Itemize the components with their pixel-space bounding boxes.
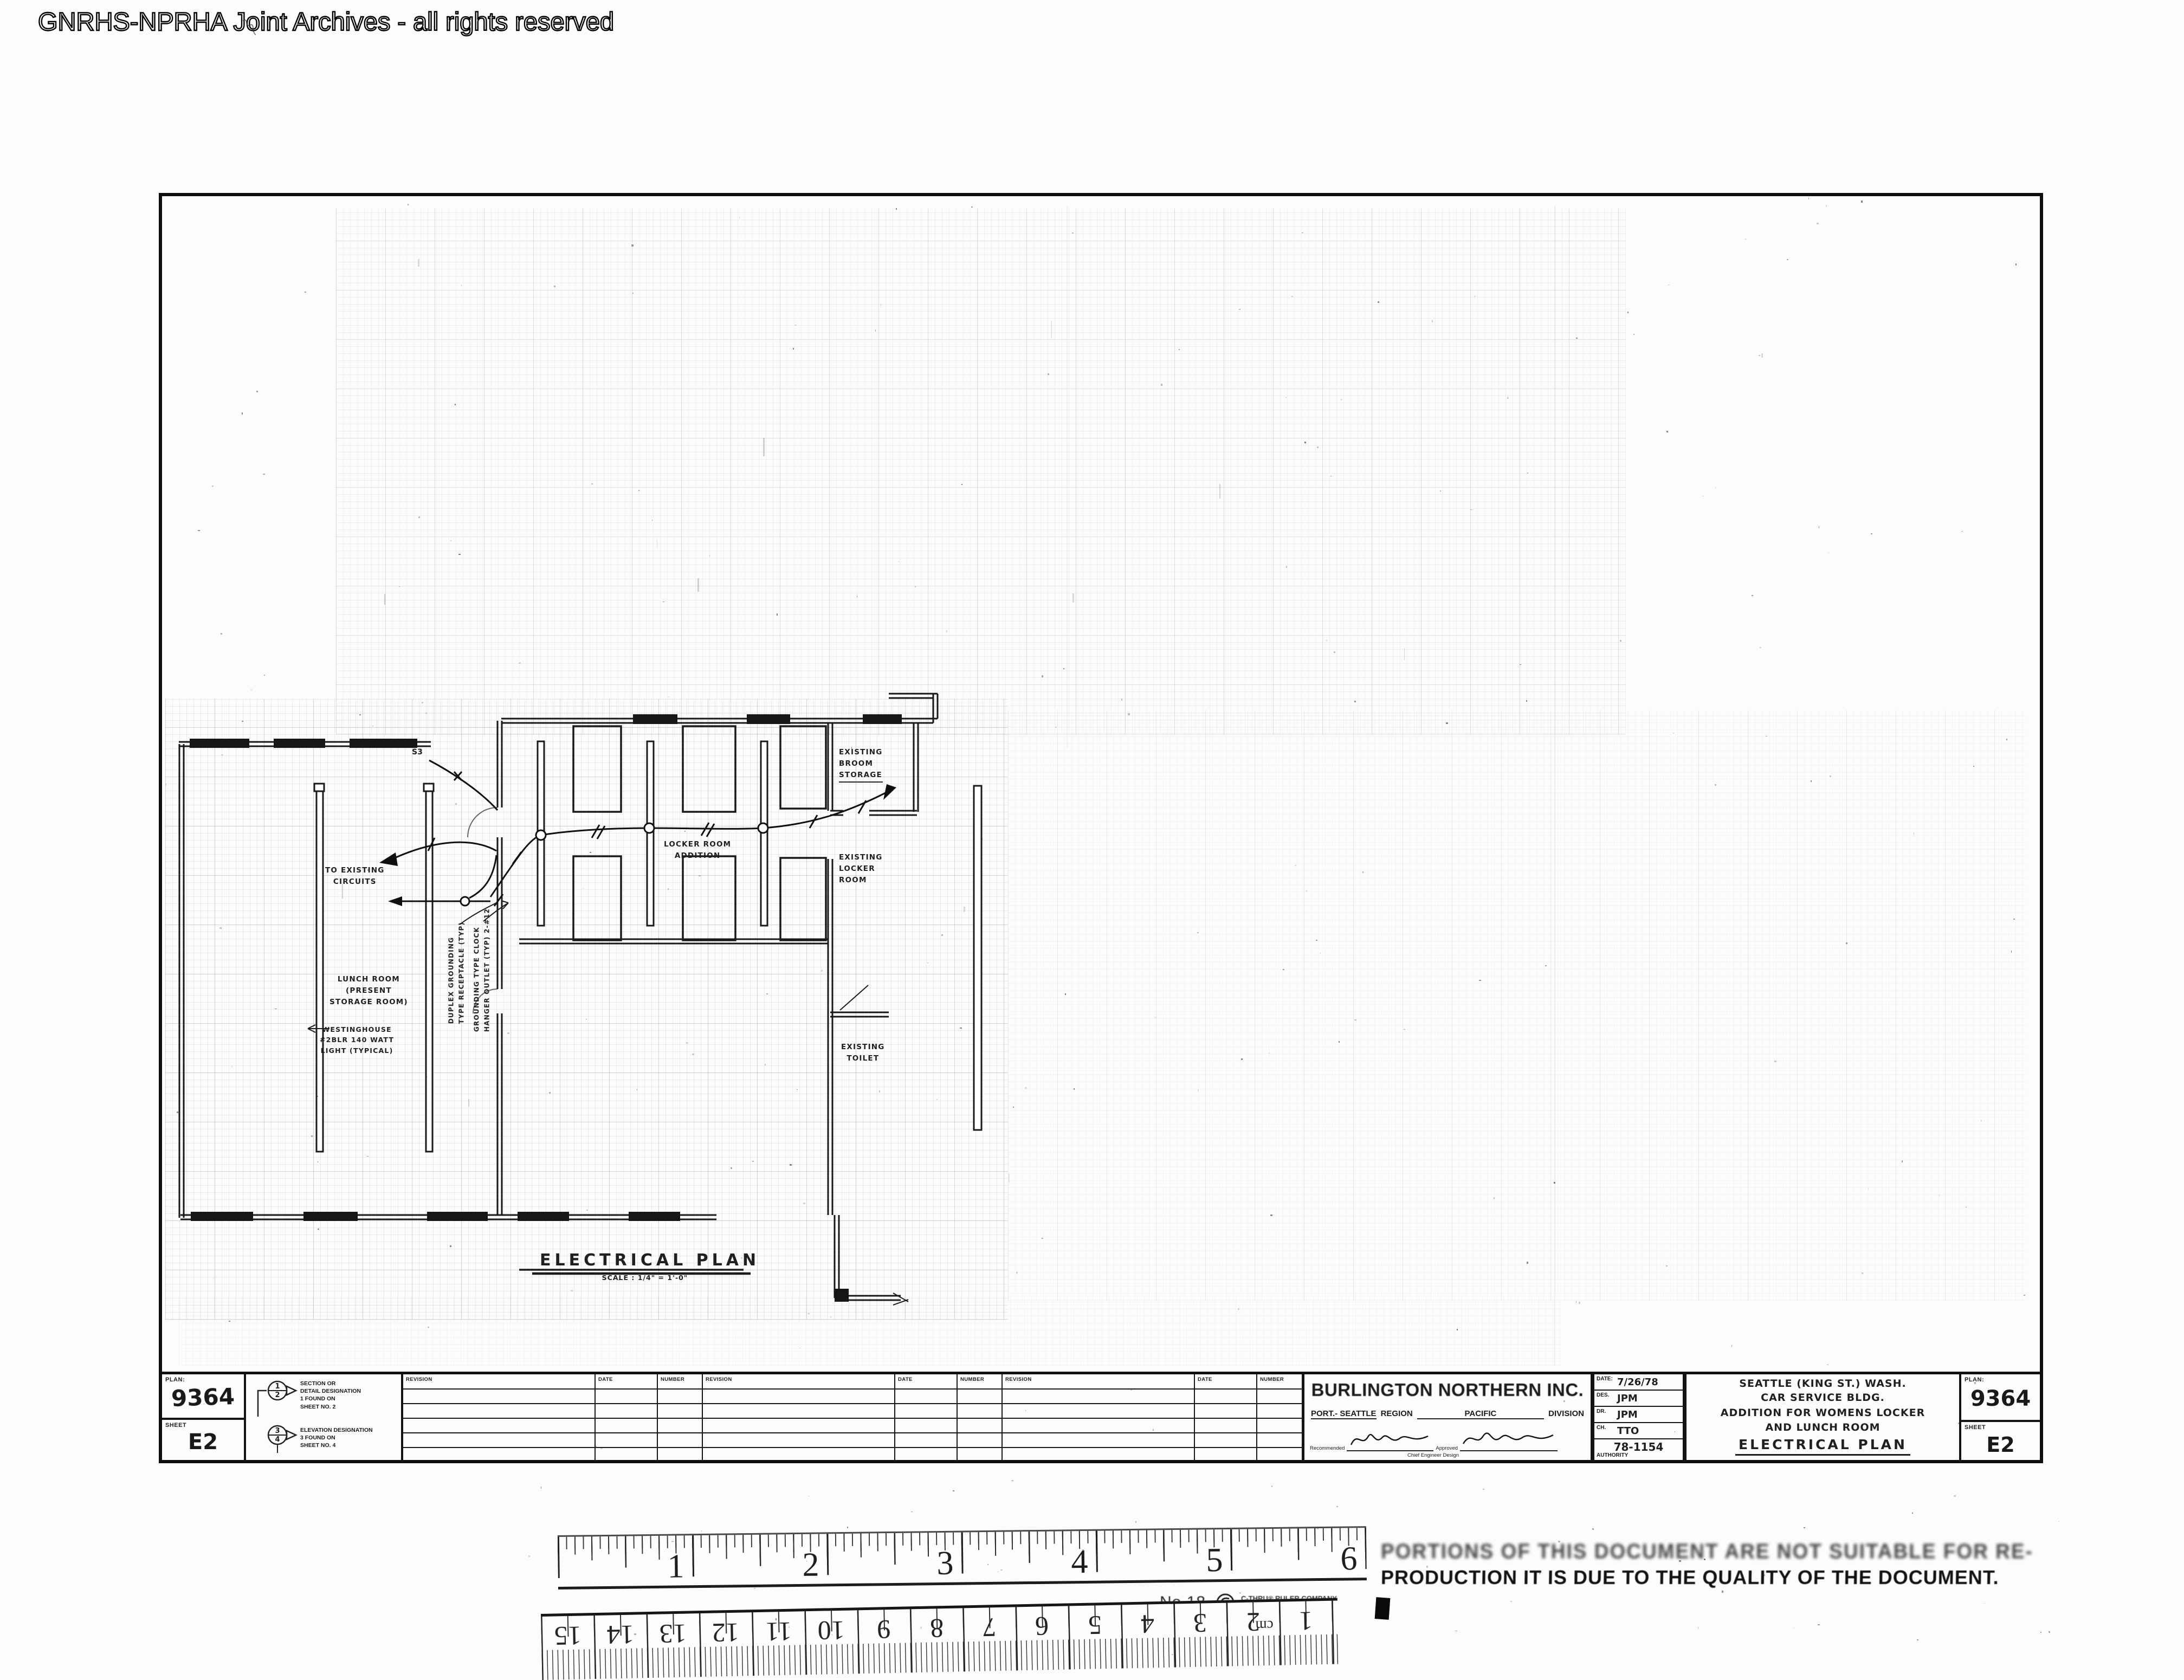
company-name: BURLINGTON NORTHERN INC. bbox=[1304, 1380, 1591, 1400]
revision-header: REVISION bbox=[406, 1377, 432, 1382]
project-line2: CAR SERVICE BLDG. bbox=[1687, 1392, 1959, 1404]
approval-row-ch: CH. TTO bbox=[1594, 1423, 1683, 1439]
number-header: NUMBER bbox=[661, 1377, 684, 1382]
legend-elevation-bottom-num: 4 bbox=[275, 1436, 280, 1444]
number-header: NUMBER bbox=[960, 1377, 984, 1382]
inch-ruler: 1 2 3 4 5 6 bbox=[558, 1526, 1367, 1589]
recommended-label: Recommended bbox=[1310, 1445, 1345, 1451]
region-label: REGION bbox=[1381, 1409, 1413, 1418]
ch-label: CH. bbox=[1597, 1425, 1606, 1431]
project-title: ELECTRICAL PLAN bbox=[1687, 1437, 1959, 1452]
revision-header: REVISION bbox=[1005, 1377, 1032, 1382]
dr-value: JPM bbox=[1617, 1409, 1638, 1420]
cm-number: 1 bbox=[1287, 1605, 1324, 1637]
chief-engineer-caption: Chief Engineer Design bbox=[1407, 1452, 1459, 1458]
project-line3: ADDITION FOR WOMENS LOCKER bbox=[1687, 1407, 1959, 1419]
plan-sheet-box-right: PLAN: 9364 SHEET E2 bbox=[1961, 1374, 2040, 1462]
legend-elevation-top-num: 3 bbox=[275, 1427, 280, 1435]
inch-number: 5 bbox=[1193, 1541, 1223, 1580]
project-box: SEATTLE (KING ST.) WASH. CAR SERVICE BLD… bbox=[1685, 1374, 1961, 1462]
company-box: BURLINGTON NORTHERN INC. PORT.- SEATTLE … bbox=[1303, 1374, 1593, 1462]
cm-number: 15 bbox=[549, 1620, 586, 1652]
inch-number: 3 bbox=[923, 1545, 954, 1584]
sheet-label: SHEET bbox=[1965, 1424, 1986, 1431]
cm-number: 7 bbox=[971, 1612, 1008, 1644]
sheet-label: SHEET bbox=[165, 1422, 186, 1429]
region-line: PORT.- SEATTLE REGION PACIFIC DIVISION bbox=[1311, 1409, 1584, 1419]
date-value: 7/26/78 bbox=[1617, 1377, 1658, 1388]
cm-number: 8 bbox=[918, 1613, 955, 1645]
date-header: DATE bbox=[598, 1377, 613, 1382]
recommended-signature bbox=[1347, 1430, 1433, 1451]
plan-label: PLAN: bbox=[1965, 1377, 1984, 1383]
legend-box: 1 2 3 4 SECTION OR DETAIL DESIGNATION 1 … bbox=[246, 1374, 403, 1462]
des-value: JPM bbox=[1617, 1393, 1638, 1404]
division-value: PACIFIC bbox=[1417, 1409, 1544, 1419]
sheet-number: E2 bbox=[1961, 1433, 2040, 1457]
cm-number: 3 bbox=[1181, 1607, 1219, 1639]
legend-section-text: SECTION OR DETAIL DESIGNATION 1 FOUND ON… bbox=[300, 1380, 361, 1411]
title-block: PLAN: 9364 SHEET E2 1 2 3 4 SECTION OR D… bbox=[162, 1372, 2040, 1462]
ch-value: TTO bbox=[1617, 1425, 1639, 1437]
date-header: DATE bbox=[898, 1377, 913, 1382]
inch-number: 6 bbox=[1327, 1540, 1358, 1579]
sheet-number: E2 bbox=[162, 1430, 244, 1455]
approved-label: Approved bbox=[1436, 1445, 1458, 1451]
des-label: DES. bbox=[1597, 1392, 1609, 1398]
cm-number: 6 bbox=[1023, 1611, 1061, 1643]
approved-signature bbox=[1460, 1430, 1558, 1451]
cm-number: 13 bbox=[654, 1618, 692, 1650]
cm-number: 5 bbox=[1076, 1610, 1114, 1642]
authority-value: 78-1154 bbox=[1594, 1440, 1683, 1453]
signature-row: Recommended Approved bbox=[1310, 1430, 1585, 1451]
date-label: DATE: bbox=[1597, 1376, 1613, 1382]
revision-table-group: REVISION DATE NUMBER bbox=[703, 1374, 1003, 1462]
number-header: NUMBER bbox=[1260, 1377, 1284, 1382]
authority-label: AUTHORITY bbox=[1597, 1452, 1628, 1458]
plan-number: 9364 bbox=[161, 1382, 244, 1412]
cm-number: 9 bbox=[865, 1614, 902, 1646]
date-header: DATE bbox=[1198, 1377, 1212, 1382]
revision-table-group: REVISION DATE NUMBER bbox=[403, 1374, 703, 1462]
plan-label: PLAN: bbox=[165, 1377, 185, 1383]
cm-number: 14 bbox=[602, 1619, 639, 1651]
cm-number: 11 bbox=[760, 1616, 797, 1648]
approval-row-dr: DR. JPM bbox=[1594, 1407, 1683, 1423]
revision-table-group: REVISION DATE NUMBER bbox=[1003, 1374, 1303, 1462]
plan-sheet-box-left: PLAN: 9364 SHEET E2 bbox=[162, 1374, 246, 1462]
port-value: PORT.- SEATTLE bbox=[1311, 1409, 1377, 1419]
cm-number: 12 bbox=[707, 1617, 744, 1649]
approval-row-des: DES. JPM bbox=[1594, 1391, 1683, 1407]
project-line4: AND LUNCH ROOM bbox=[1687, 1421, 1959, 1433]
legend-section-bottom-num: 2 bbox=[275, 1391, 280, 1399]
approval-row-authority: 78-1154 AUTHORITY bbox=[1594, 1439, 1683, 1459]
cm-number: 10 bbox=[812, 1615, 850, 1647]
inch-number: 1 bbox=[654, 1547, 684, 1586]
approvals-box: DATE: 7/26/78 DES. JPM DR. JPM CH. TTO 7… bbox=[1593, 1374, 1685, 1462]
revision-header: REVISION bbox=[706, 1377, 732, 1382]
project-line1: SEATTLE (KING ST.) WASH. bbox=[1687, 1378, 1959, 1390]
legend-section-top-num: 1 bbox=[275, 1382, 280, 1391]
approval-row-date: DATE: 7/26/78 bbox=[1594, 1374, 1683, 1391]
plan-number: 9364 bbox=[1961, 1386, 2040, 1411]
cm-number: 4 bbox=[1129, 1608, 1166, 1640]
scanned-drawing-page: { "watermark": "GNRHS-NPRHA Joint Archiv… bbox=[0, 0, 2184, 1680]
cm-unit-label: cm bbox=[1255, 1617, 1274, 1634]
inch-number: 4 bbox=[1058, 1543, 1088, 1582]
dr-label: DR. bbox=[1597, 1408, 1606, 1414]
inch-number: 2 bbox=[789, 1546, 819, 1585]
legend-elevation-text: ELEVATION DESIGNATION 3 FOUND ON SHEET N… bbox=[300, 1426, 373, 1450]
division-label: DIVISION bbox=[1548, 1409, 1584, 1418]
